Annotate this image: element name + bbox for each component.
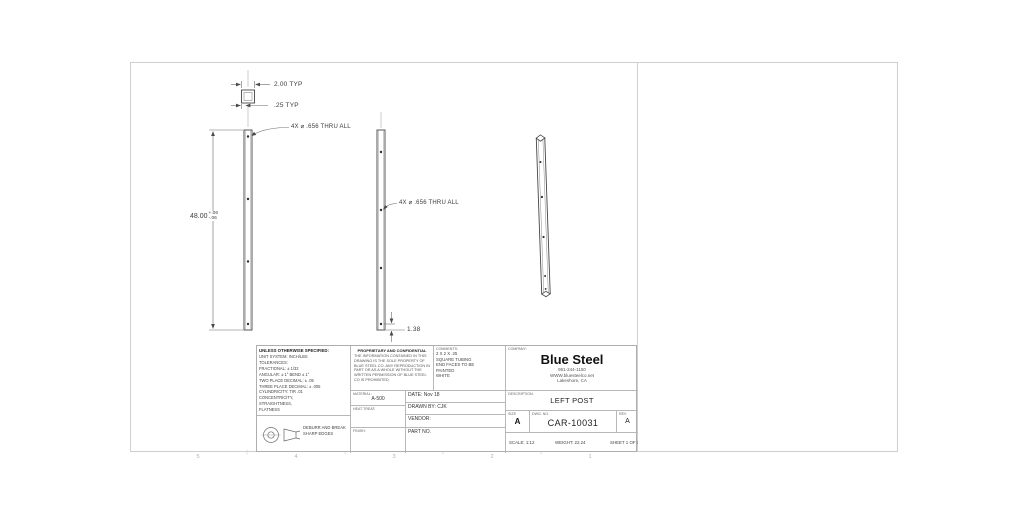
drawn-by-label: DRAWN BY: — [408, 404, 436, 410]
date-value: Nov 18 — [424, 392, 440, 398]
sheet-value: SHEET 1 OF 1 — [610, 440, 638, 445]
weight-cell: WEIGHT: 22.24 — [552, 433, 610, 453]
dim-length — [209, 130, 243, 330]
dim-width-label: 2.00 TYP — [274, 81, 303, 88]
proprietary-block: PROPRIETARY AND CONFIDENTIAL THE INFORMA… — [351, 346, 434, 391]
dim-width — [231, 81, 270, 88]
dwg-no-value: CAR-10031 — [530, 418, 616, 428]
finish-label: FINISH: — [353, 429, 405, 433]
dwg-no-label: DWG. NO. — [532, 412, 616, 416]
size-value: A — [506, 417, 529, 426]
dim-length-label: 48.00 +.06 -.06 — [189, 211, 219, 221]
weight-value: WEIGHT: 22.24 — [555, 440, 610, 445]
scale-value: SCALE: 1:12 — [509, 440, 552, 445]
dim-hole-offset — [384, 312, 405, 342]
description-value: LEFT POST — [506, 396, 638, 405]
company-name: Blue Steel — [506, 352, 638, 367]
part-no-label: PART NO. — [408, 429, 431, 435]
vendor-label: VENDOR: — [408, 416, 431, 422]
rev-cell: REV A — [617, 411, 638, 433]
scale-cell: SCALE: 1:12 — [506, 433, 552, 453]
rev-label: REV — [619, 412, 638, 416]
size-label: SIZE — [508, 412, 529, 416]
side-view — [377, 112, 385, 330]
title-block: UNLESS OTHERWISE SPECIFIED: UNIT SYSTEM:… — [256, 345, 637, 452]
proprietary-body: THE INFORMATION CONTAINED IN THIS DRAWIN… — [354, 354, 430, 383]
hole-callout-1: 4X ⌀ .656 THRU ALL — [291, 123, 351, 130]
tolerance-header: UNLESS OTHERWISE SPECIFIED: — [259, 348, 350, 353]
zone-number: 2 — [490, 454, 493, 460]
projection-note: DEBURR AND BREAK SHARP EDGES — [303, 425, 346, 436]
zone-number: 5 — [196, 454, 199, 460]
company-label: COMPANY: — [508, 347, 638, 351]
leader-callout-2 — [384, 204, 398, 210]
description-cell: DESCRIPTION: LEFT POST — [506, 391, 638, 411]
front-view — [244, 130, 252, 330]
dim-length-value: 48.00 — [190, 213, 208, 220]
zone-number: 4 — [294, 454, 297, 460]
date-label: DATE: — [408, 392, 422, 398]
dim-wall-label: .25 TYP — [274, 102, 299, 109]
tolerance-block: UNLESS OTHERWISE SPECIFIED: UNIT SYSTEM:… — [257, 346, 351, 416]
dim-length-tol-minus: -.06 — [209, 216, 218, 221]
material-cell: MATERIAL: A-500 — [351, 391, 406, 406]
iso-view — [536, 135, 550, 297]
heat-treat-label: HEAT TREAT: — [353, 407, 405, 411]
zone-number: 3 — [392, 454, 395, 460]
drawn-by-cell: DRAWN BY: CJK — [406, 403, 506, 415]
drawn-by-value: CJK — [437, 404, 446, 410]
company-block: COMPANY: Blue Steel 951-244-1150 WWW.blu… — [506, 346, 638, 391]
section-view — [242, 70, 255, 127]
engineering-drawing-page: { "drawing": { "dims": { "width_typ": "2… — [0, 0, 1024, 528]
sheet-cell: SHEET 1 OF 1 — [610, 433, 638, 453]
finish-cell: FINISH: — [351, 428, 406, 453]
size-cell: SIZE A — [506, 411, 530, 433]
projection-cell: DEBURR AND BREAK SHARP EDGES — [257, 416, 351, 453]
material-value: A-500 — [351, 396, 405, 402]
rev-value: A — [617, 418, 638, 425]
part-no-cell: PART NO. — [406, 428, 506, 453]
comments-block: COMMENTS: 2 X 2 X .25 SQUARE TUBING END … — [434, 346, 506, 391]
third-angle-projection-icon — [261, 422, 301, 448]
zone-number: 1 — [588, 454, 591, 460]
company-location: Lakeshore, CA — [506, 378, 638, 384]
heat-treat-cell: HEAT TREAT: — [351, 406, 406, 428]
vendor-cell: VENDOR: — [406, 415, 506, 428]
dwg-no-cell: DWG. NO. CAR-10031 — [530, 411, 617, 433]
date-cell: DATE: Nov 18 — [406, 391, 506, 403]
dim-hole-offset-label: 1.38 — [407, 326, 420, 333]
dim-wall — [231, 104, 268, 109]
hole-callout-2: 4X ⌀ .656 THRU ALL — [399, 199, 459, 206]
proprietary-header: PROPRIETARY AND CONFIDENTIAL — [351, 348, 433, 353]
leader-callout-1 — [252, 128, 290, 137]
